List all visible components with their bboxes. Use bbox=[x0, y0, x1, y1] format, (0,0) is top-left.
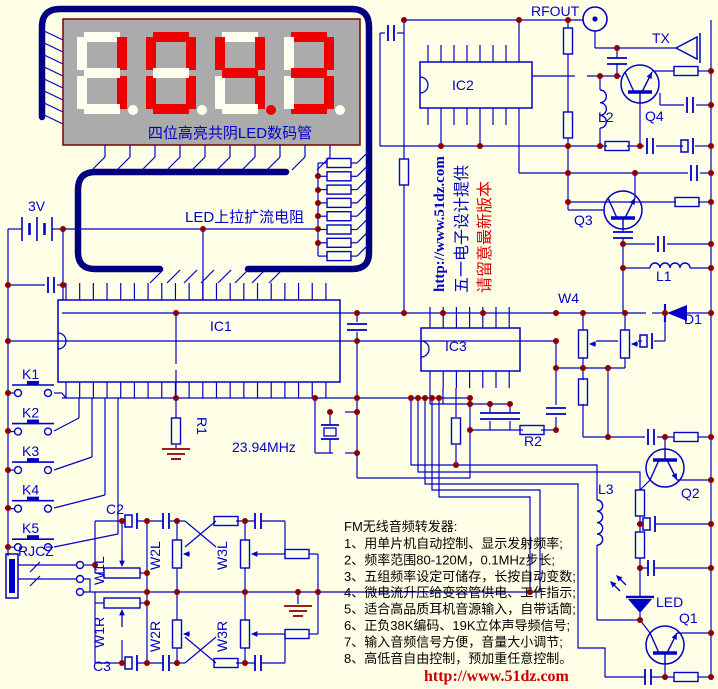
rfout-connector bbox=[583, 7, 607, 31]
tx-antenna bbox=[676, 33, 700, 63]
q1-label: Q1 bbox=[679, 610, 698, 626]
pot-label-3: W1R bbox=[91, 617, 107, 648]
description-item-4: 4、微电流升压给变容管供电、工作指示; bbox=[344, 585, 576, 600]
battery-label: 3V bbox=[28, 198, 46, 214]
pot-label-1: W2L bbox=[147, 541, 163, 570]
l3-label: L3 bbox=[598, 481, 614, 497]
transistor-q2 bbox=[646, 449, 684, 487]
audio-jack bbox=[6, 554, 84, 598]
transistor-q1 bbox=[646, 626, 684, 664]
description-item-3: 3、五组频率设定可储存，长按自动变数; bbox=[344, 569, 576, 584]
switch-k2 bbox=[8, 420, 54, 436]
transistor-q3 bbox=[604, 191, 642, 229]
watermark-line2: 请留意最新版本 bbox=[475, 181, 494, 293]
description-item-5: 5、适合高品质耳机音源输入，自带话筒; bbox=[344, 602, 576, 617]
q3-label: Q3 bbox=[574, 212, 593, 228]
description-item-2: 2、频率范围80-120M，0.1MHz步长; bbox=[344, 552, 555, 567]
w4-label: W4 bbox=[558, 290, 579, 306]
display-caption: 四位高亮共阴LED数码管 bbox=[148, 125, 312, 142]
pot-label-5: W3R bbox=[214, 621, 230, 652]
switch-label-k5: K5 bbox=[22, 520, 39, 536]
footer-url: http://www.51dz.com bbox=[424, 668, 570, 685]
c2-label: C2 bbox=[106, 501, 124, 517]
description-item-6: 6、正负38K编码、19K立体声导频信号; bbox=[344, 618, 570, 633]
watermark-line1: 五一电子设计提供 bbox=[453, 165, 471, 293]
switch-label-k2: K2 bbox=[22, 405, 39, 421]
r2-label: R2 bbox=[524, 433, 542, 449]
ic2-label: IC2 bbox=[452, 77, 474, 93]
pot-label-0: W1L bbox=[91, 556, 107, 585]
schematic-page: 四位高亮共阴LED数码管 K1K2K3K4K5W1LW2LW3LW1RW2RW3… bbox=[0, 0, 718, 689]
c3-label: C3 bbox=[93, 658, 111, 674]
led-label: LED bbox=[656, 594, 683, 610]
l2-label: L2 bbox=[598, 109, 614, 125]
ic3-chip bbox=[421, 328, 520, 371]
tx-label: TX bbox=[652, 30, 671, 46]
pot-label-2: W3L bbox=[214, 541, 230, 570]
jack-label: RJCZ bbox=[18, 543, 54, 559]
led-diode bbox=[611, 576, 654, 613]
switch-label-k4: K4 bbox=[22, 482, 39, 498]
l1-label: L1 bbox=[656, 268, 672, 284]
switch-k1 bbox=[8, 381, 54, 397]
ic3-label: IC3 bbox=[445, 338, 467, 354]
switch-label-k3: K3 bbox=[22, 443, 39, 459]
transistor-q4 bbox=[621, 65, 659, 103]
pot-label-4: W2R bbox=[147, 621, 163, 652]
led-resistor-label: LED上拉扩流电阻 bbox=[185, 209, 304, 226]
switch-k4 bbox=[8, 497, 54, 513]
schematic-canvas: 四位高亮共阴LED数码管 K1K2K3K4K5W1LW2LW3LW1RW2RW3… bbox=[0, 0, 718, 689]
switch-k3 bbox=[8, 458, 54, 474]
q2-label: Q2 bbox=[681, 485, 700, 501]
description-item-1: 1、用单片机自动控制、显示发射频率; bbox=[344, 536, 563, 551]
description-item-7: 7、输入音频信号方便，音量大小调节; bbox=[344, 634, 563, 649]
crystal-label: 23.94MHz bbox=[232, 439, 296, 455]
watermark-url: http://www.51dz.com bbox=[432, 156, 448, 292]
description-item-8: 8、高低音自由控制，预加重任意控制。 bbox=[344, 651, 572, 666]
ic2-chip bbox=[420, 62, 532, 108]
description-title: FM无线音频转发器: bbox=[344, 519, 457, 534]
switch-label-k1: K1 bbox=[22, 366, 39, 382]
seven-segment-display: 四位高亮共阴LED数码管 bbox=[63, 19, 360, 145]
rfout-label: RFOUT bbox=[531, 3, 580, 19]
d1-label: D1 bbox=[684, 311, 702, 327]
ic1-label: IC1 bbox=[210, 318, 232, 334]
q4-label: Q4 bbox=[645, 108, 664, 124]
r1-label: R1 bbox=[194, 417, 210, 435]
